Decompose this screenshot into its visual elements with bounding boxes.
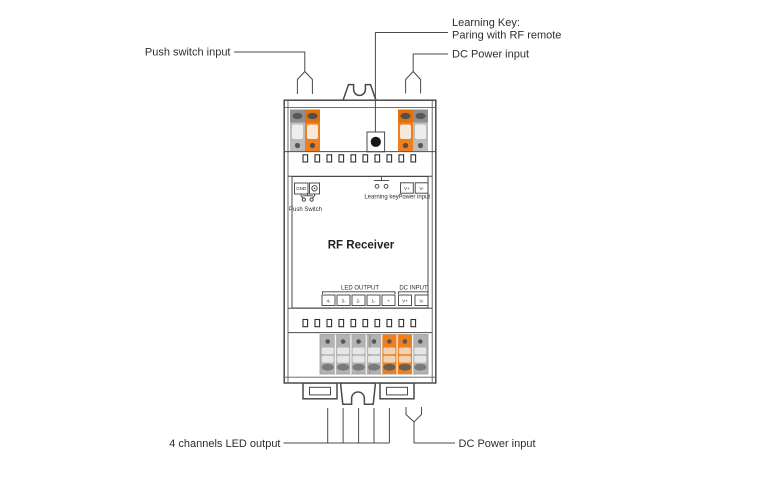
learning-key-callout-line1: Learning Key: (452, 17, 520, 29)
top-terminal-block-left (290, 110, 320, 152)
diagram-canvas: GND Push Switch Learning key (0, 0, 760, 500)
dc-power-bottom-label: DC Power input (459, 438, 536, 450)
push-switch-label: Push Switch (289, 207, 322, 213)
din-clip-bottom (341, 383, 376, 404)
terminal-label-plus: + (387, 299, 390, 304)
terminal-label-1: 1- (371, 299, 376, 304)
device-model-label: RF Receiver (328, 240, 395, 252)
terminal-label-3: 3- (341, 299, 346, 304)
top-terminal-vminus (413, 110, 428, 152)
dc-power-bottom-leader (406, 407, 455, 443)
dc-power-top-label: DC Power input (452, 49, 529, 61)
rf-receiver-device: GND Push Switch Learning key (284, 85, 436, 405)
power-vplus-label: V+ (404, 186, 410, 191)
din-clip-top (343, 85, 376, 101)
bottom-terminal-block (320, 335, 428, 375)
dc-input-label: DC INPUT (399, 285, 428, 291)
terminal-label-vplus: V+ (402, 299, 408, 304)
learning-key-callout-line2: Paring with RF remote (452, 30, 561, 42)
led-output-wires (284, 408, 390, 443)
terminal-label-2: 2- (356, 299, 361, 304)
callout-dc-power-top: DC Power input (406, 49, 529, 94)
callout-led-output-bottom: 4 channels LED output (169, 408, 389, 450)
top-terminal-block-right (398, 110, 428, 152)
gnd-label: GND (296, 186, 307, 191)
power-input-label: Power input (398, 194, 430, 200)
push-switch-input-label: Push switch input (145, 47, 231, 59)
push-switch-input-leader (234, 52, 312, 94)
top-terminal-switch (305, 110, 320, 152)
top-terminal-vplus (398, 110, 413, 152)
learning-key-label: Learning key (364, 194, 398, 200)
led-output-bottom-label: 4 channels LED output (169, 438, 280, 450)
led-output-label: LED OUTPUT (341, 285, 379, 291)
learning-key-button-cap (371, 137, 381, 147)
mount-foot-right (380, 383, 414, 399)
dc-power-top-leader (406, 54, 448, 94)
mount-foot-left (303, 383, 337, 399)
callout-push-switch-input: Push switch input (145, 47, 313, 95)
terminal-label-4: 4- (326, 299, 331, 304)
wiring-diagram: GND Push Switch Learning key (0, 0, 760, 500)
power-vminus-label: V- (419, 186, 424, 191)
callout-dc-power-bottom: DC Power input (406, 407, 536, 450)
top-terminal-gnd (290, 110, 305, 152)
terminal-label-vminus: V- (419, 299, 424, 304)
